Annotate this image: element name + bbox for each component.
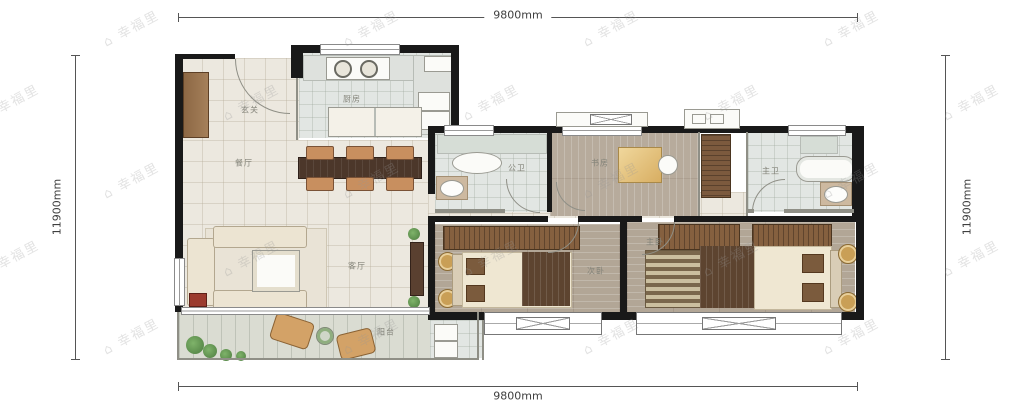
wall-partition [698, 132, 700, 216]
desk-chair [658, 155, 678, 175]
washing-machine [434, 324, 458, 341]
side-table [189, 293, 207, 307]
balcony-rail [177, 358, 479, 360]
room-label-study: 书房 [591, 158, 609, 169]
wall-segment [852, 126, 864, 218]
watermark: ⌂ 幸福里 [0, 235, 42, 281]
pillow [466, 258, 485, 275]
dimension-tick [71, 359, 80, 360]
plant [203, 344, 217, 358]
watermark: ⌂ 幸福里 [0, 79, 42, 125]
dining-chair [346, 177, 374, 191]
laundry-sink [434, 341, 458, 358]
balcony-sliding-door [181, 307, 430, 315]
room-label-bedroom2: 次卧 [587, 266, 605, 277]
watermark: ⌂ 幸福里 [819, 5, 882, 51]
pillow [466, 285, 485, 302]
appliance [424, 56, 452, 72]
bay-window-icon [516, 317, 570, 330]
wall-segment [428, 312, 484, 320]
vanity-counter [437, 134, 547, 154]
room-label-living: 客厅 [348, 261, 366, 272]
room-label-bath: 公卫 [508, 163, 526, 174]
blanket [522, 252, 570, 306]
wall-segment [578, 216, 642, 222]
shaft-icon [710, 114, 724, 124]
dimension-label-top: 9800mm [484, 9, 551, 22]
dimension-tick [941, 55, 950, 56]
room-label-master-bath: 主卫 [762, 166, 780, 177]
watermark: ⌂ 幸福里 [939, 79, 1002, 125]
wall-segment [451, 45, 459, 132]
coffee-table [252, 250, 300, 292]
dimension-tick [857, 13, 858, 22]
dimension-tick [857, 382, 858, 391]
washbasin [452, 152, 502, 174]
bookshelf [701, 134, 731, 198]
wall-partition [746, 132, 748, 216]
vanity-counter [800, 136, 838, 154]
wall-segment [181, 54, 235, 59]
balcony-rail [177, 312, 179, 360]
bathtub [796, 156, 856, 182]
pillow [802, 283, 824, 302]
dimension-label-right: 11900mm [961, 170, 974, 244]
window [320, 44, 400, 55]
wall-segment [674, 216, 864, 222]
dining-chair [386, 177, 414, 191]
wall-segment [428, 216, 548, 222]
blanket [700, 246, 754, 308]
dimension-line-bottom [178, 386, 858, 387]
balcony-rail [477, 312, 479, 360]
watermark: ⌂ 幸福里 [579, 5, 642, 51]
wall-segment [856, 218, 864, 320]
balcony-table [316, 327, 334, 345]
shoe-cabinet [183, 72, 209, 138]
dining-table [298, 157, 422, 179]
wall-segment [547, 132, 552, 212]
bedside-lamp [838, 292, 858, 312]
desk [618, 147, 662, 183]
room-label-balcony: 阳台 [377, 327, 395, 338]
wall-partition [435, 209, 505, 213]
dimension-line-left [75, 55, 76, 360]
dimension-label-left: 11900mm [51, 170, 64, 244]
kitchen-bench [328, 107, 422, 137]
bedside-lamp [838, 244, 858, 264]
dimension-label-bottom: 9800mm [484, 390, 551, 403]
dining-chair [386, 146, 414, 160]
plant [186, 336, 204, 354]
toilet [440, 180, 464, 197]
watermark: ⌂ 幸福里 [99, 313, 162, 359]
wall-segment [620, 222, 627, 320]
dimension-tick [941, 359, 950, 360]
sink [418, 92, 450, 111]
pillow [802, 254, 824, 273]
dining-chair [306, 177, 334, 191]
dimension-tick [178, 382, 179, 391]
shaft-icon [692, 114, 706, 124]
watermark: ⌂ 幸福里 [99, 157, 162, 203]
wall-partition [296, 78, 298, 140]
wall-segment [428, 126, 435, 194]
burner-icon [360, 60, 378, 78]
shaft-icon [590, 114, 632, 125]
window [444, 125, 494, 136]
tv-cabinet [410, 242, 424, 296]
rug [645, 250, 701, 308]
dimension-tick [178, 13, 179, 22]
window [174, 258, 185, 306]
bay-window-icon [702, 317, 776, 330]
dimension-tick [71, 55, 80, 56]
wall-segment [600, 312, 636, 320]
dining-chair [346, 146, 374, 160]
wall-segment [428, 222, 435, 314]
watermark: ⌂ 幸福里 [99, 5, 162, 51]
toilet [824, 186, 848, 203]
floor-plan: 9800mm 9800mm 11900mm 11900mm [0, 0, 1020, 419]
watermark: ⌂ 幸福里 [459, 79, 522, 125]
plant [408, 228, 420, 240]
room-label-entry: 玄关 [241, 105, 259, 116]
wall-segment [840, 312, 864, 320]
wall-partition [784, 209, 854, 213]
dimension-line-right [945, 55, 946, 360]
window [788, 125, 846, 136]
room-label-kitchen: 厨房 [343, 94, 361, 105]
room-label-dining: 餐厅 [235, 158, 253, 169]
dining-chair [306, 146, 334, 160]
sofa [213, 226, 307, 248]
room-label-master-bedroom: 主卧 [646, 237, 664, 248]
burner-icon [334, 60, 352, 78]
